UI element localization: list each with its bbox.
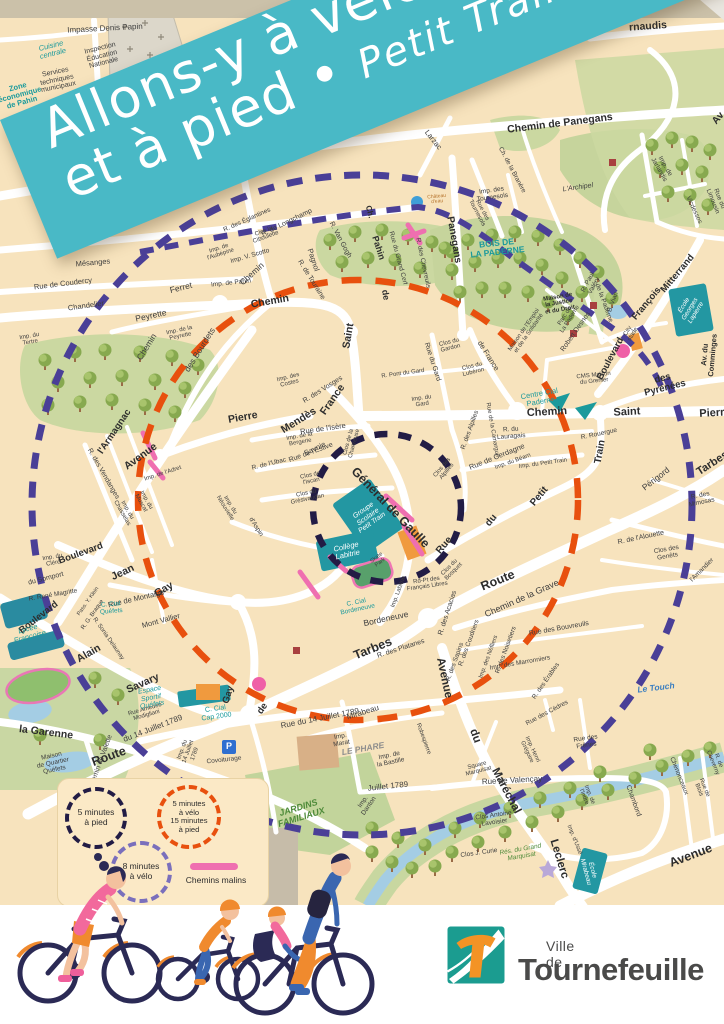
crossing-dot	[616, 344, 630, 358]
legend-bike5-label: 5 minutes à vélo 15 minutes à pied	[170, 800, 207, 834]
legend-bike5-circle: 5 minutes à vélo 15 minutes à pied	[157, 785, 221, 849]
legend-walk-label: 5 minutes à pied	[78, 808, 115, 827]
tournefeuille-logo-icon	[446, 925, 506, 985]
poster-root: Impasse Denis PapinCuisine centraleInspe…	[0, 0, 724, 1024]
man-with-child-cyclist-illustration	[225, 828, 377, 1020]
logo-tournefeuille: Tournefeuille	[518, 952, 704, 988]
crossing-dot	[252, 677, 266, 691]
legend-walk-circle: 5 minutes à pied	[65, 787, 127, 849]
woman-cyclist-illustration	[8, 845, 173, 1015]
